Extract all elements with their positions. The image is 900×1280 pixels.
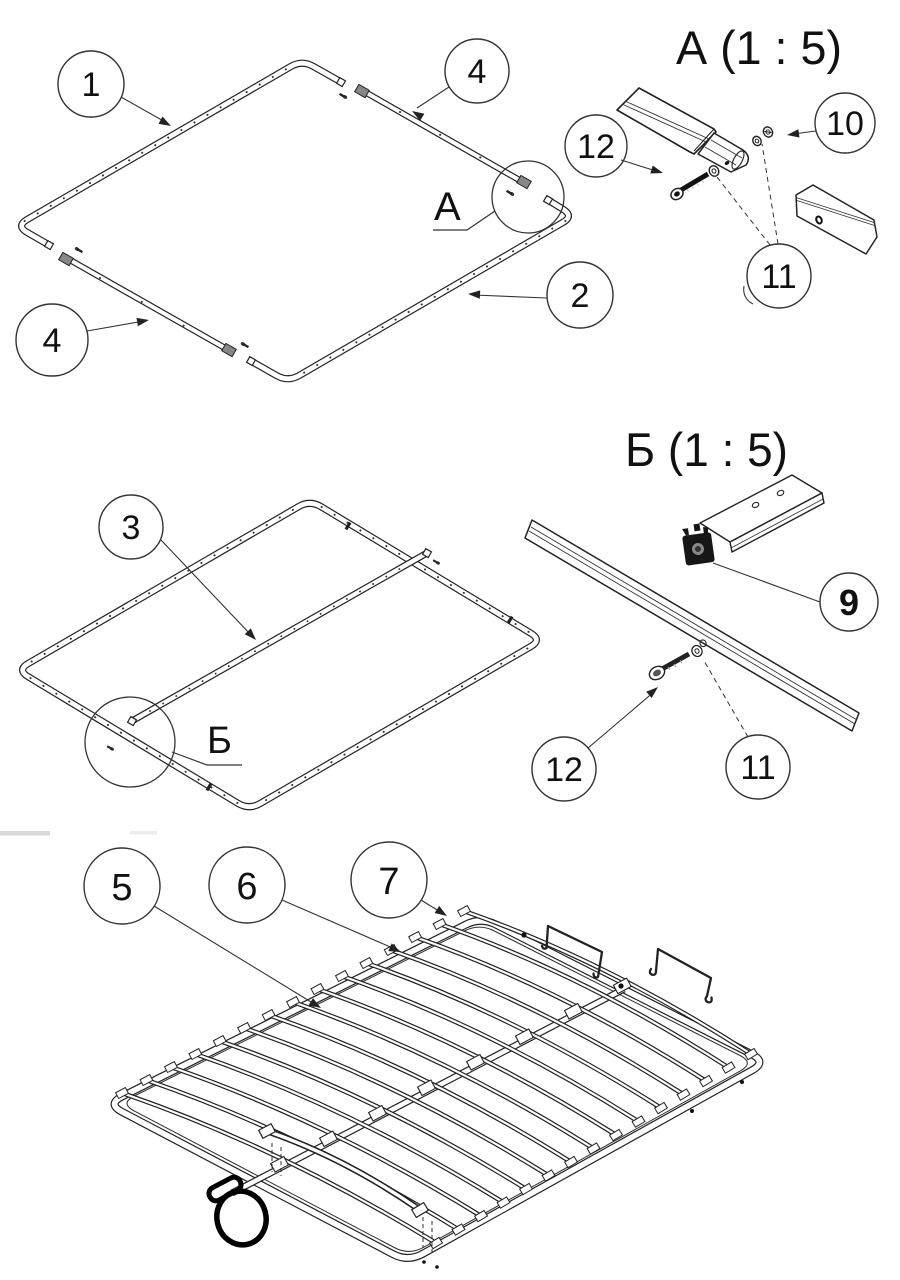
svg-text:Б (1 : 5): Б (1 : 5)	[625, 423, 788, 476]
svg-text:12: 12	[577, 128, 615, 166]
svg-text:12: 12	[545, 751, 583, 789]
svg-text:7: 7	[378, 861, 399, 903]
svg-text:А: А	[434, 185, 461, 229]
svg-text:4: 4	[43, 322, 62, 360]
svg-text:9: 9	[839, 582, 859, 623]
svg-text:4: 4	[468, 53, 487, 91]
svg-text:2: 2	[571, 277, 590, 315]
svg-text:3: 3	[122, 509, 141, 547]
svg-text:5: 5	[111, 867, 132, 909]
svg-text:Б: Б	[207, 720, 232, 762]
svg-text:1: 1	[82, 66, 101, 104]
svg-text:10: 10	[826, 105, 864, 143]
svg-text:6: 6	[236, 866, 257, 908]
svg-text:А (1 : 5): А (1 : 5)	[676, 21, 842, 74]
svg-text:11: 11	[761, 258, 796, 296]
svg-text:11: 11	[740, 749, 775, 787]
